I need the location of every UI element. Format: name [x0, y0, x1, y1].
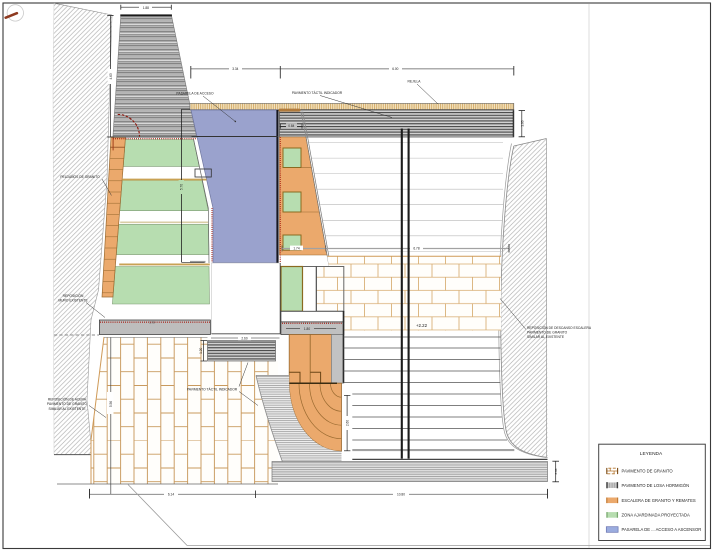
svg-text:LEYENDA: LEYENDA — [640, 451, 663, 457]
svg-text:ESCALERA DE GRANITO Y REMATES: ESCALERA DE GRANITO Y REMATES — [622, 498, 696, 503]
svg-text:4.63: 4.63 — [109, 73, 113, 79]
svg-text:PASARELA DE ... ACCESO A ASCEN: PASARELA DE ... ACCESO A ASCENSOR — [622, 527, 702, 532]
svg-text:PAVIMENTO TÁCTIL INDICADOR: PAVIMENTO TÁCTIL INDICADOR — [187, 388, 238, 392]
svg-text:0.80: 0.80 — [554, 468, 558, 474]
svg-text:0.84: 0.84 — [288, 124, 294, 128]
svg-text:MURO EXISTENTE: MURO EXISTENTE — [58, 299, 88, 303]
svg-text:REPOSICIÓN DE DESCANSO ESCALER: REPOSICIÓN DE DESCANSO ESCALERA — [527, 325, 592, 330]
svg-text:ZONA AJARDINADA PROYECTADA: ZONA AJARDINADA PROYECTADA — [622, 513, 691, 518]
svg-text:PASARELA DE ACCESO: PASARELA DE ACCESO — [176, 92, 214, 96]
svg-text:6.14: 6.14 — [168, 492, 174, 496]
svg-text:1.20: 1.20 — [199, 347, 203, 353]
svg-text:1.74: 1.74 — [293, 247, 299, 251]
svg-text:PAVIMENTO DE GRANITO: PAVIMENTO DE GRANITO — [622, 469, 674, 474]
svg-text:5.70: 5.70 — [179, 184, 183, 190]
svg-text:REPOSICIÓN: REPOSICIÓN — [63, 293, 84, 298]
svg-text:1.80: 1.80 — [304, 327, 310, 331]
svg-text:2.60: 2.60 — [346, 420, 350, 426]
svg-text:10.80: 10.80 — [397, 492, 405, 496]
svg-text:SIMILAR AL EXISTENTE: SIMILAR AL EXISTENTE — [48, 407, 86, 411]
svg-text:REJILLA: REJILLA — [407, 80, 421, 84]
svg-text:1.88: 1.88 — [143, 6, 149, 10]
svg-text:6.00: 6.00 — [392, 67, 398, 71]
svg-text:6.78: 6.78 — [413, 247, 419, 251]
svg-text:3.34: 3.34 — [232, 67, 238, 71]
svg-text:PELDAÑOS DE GRANITO: PELDAÑOS DE GRANITO — [60, 174, 100, 179]
svg-text:SIMILAR AL EXISTENTE: SIMILAR AL EXISTENTE — [527, 335, 565, 339]
svg-text:PAVIMENTO DE GRANITO: PAVIMENTO DE GRANITO — [47, 402, 88, 406]
svg-text:PAVIMENTO TÁCTIL INDICADOR: PAVIMENTO TÁCTIL INDICADOR — [292, 91, 343, 95]
svg-text:1.70: 1.70 — [149, 320, 155, 324]
svg-text:REPOSICIÓN DE ACERA: REPOSICIÓN DE ACERA — [48, 396, 87, 401]
svg-text:PAVIMENTO DE LOSA HORMIGÓN: PAVIMENTO DE LOSA HORMIGÓN — [622, 483, 690, 488]
svg-text:+2.22: +2.22 — [416, 323, 428, 328]
svg-text:1.00: 1.00 — [520, 120, 524, 126]
svg-text:5.56: 5.56 — [109, 401, 113, 407]
svg-text:2.60: 2.60 — [241, 336, 247, 340]
svg-text:PAVIMENTO DE GRANITO: PAVIMENTO DE GRANITO — [527, 331, 568, 335]
